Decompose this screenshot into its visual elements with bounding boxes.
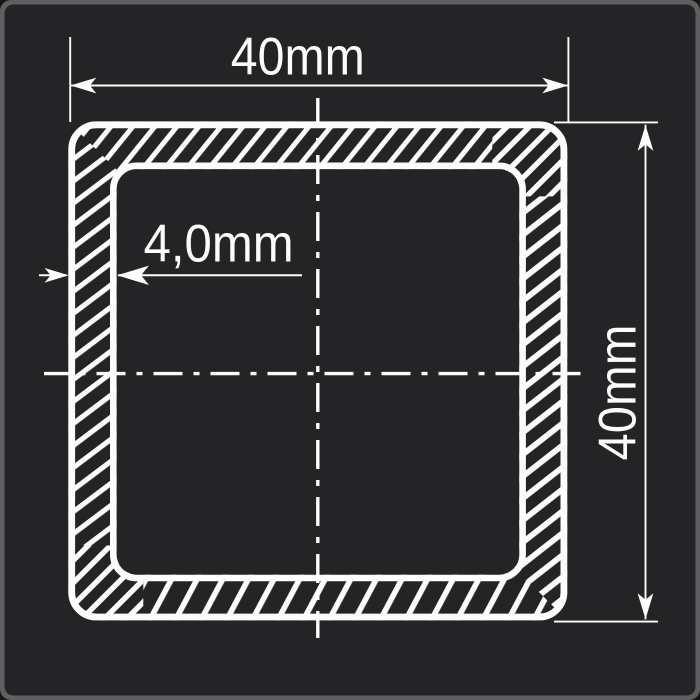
- svg-text:4,0mm: 4,0mm: [144, 214, 294, 273]
- svg-text:40mm: 40mm: [589, 325, 648, 461]
- svg-text:40mm: 40mm: [231, 28, 365, 87]
